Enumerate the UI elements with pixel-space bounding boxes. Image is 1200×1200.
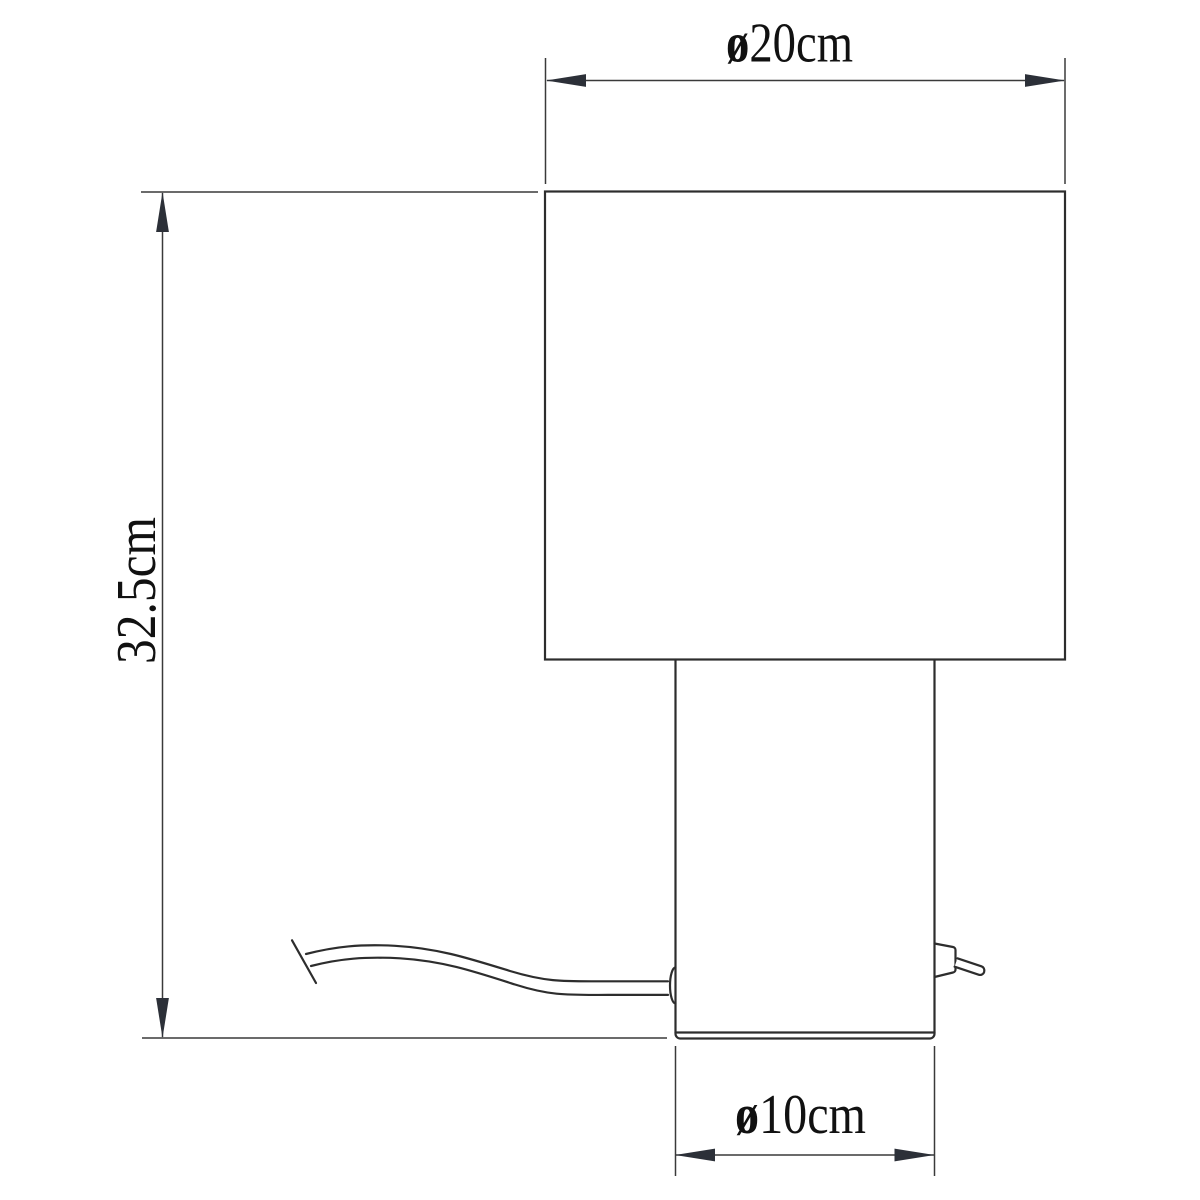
svg-text:32.5cm: 32.5cm xyxy=(106,517,168,664)
svg-text:ø20cm: ø20cm xyxy=(726,13,853,75)
svg-text:ø10cm: ø10cm xyxy=(735,1084,866,1146)
